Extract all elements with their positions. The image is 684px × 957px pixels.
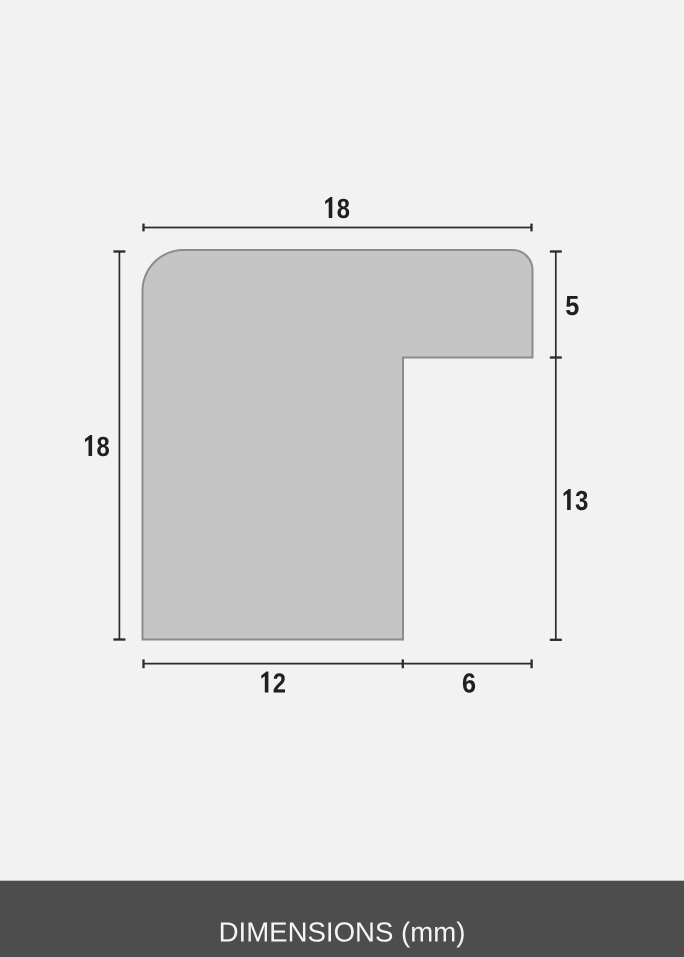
svg-text:5: 5 bbox=[565, 290, 579, 321]
svg-text:8: 8 bbox=[337, 193, 350, 224]
svg-text:2: 2 bbox=[273, 668, 286, 699]
svg-text:8: 8 bbox=[97, 431, 110, 462]
svg-text:6: 6 bbox=[462, 668, 476, 699]
svg-text:3: 3 bbox=[575, 485, 588, 516]
svg-text:DIMENSIONS (mm): DIMENSIONS (mm) bbox=[219, 917, 466, 948]
